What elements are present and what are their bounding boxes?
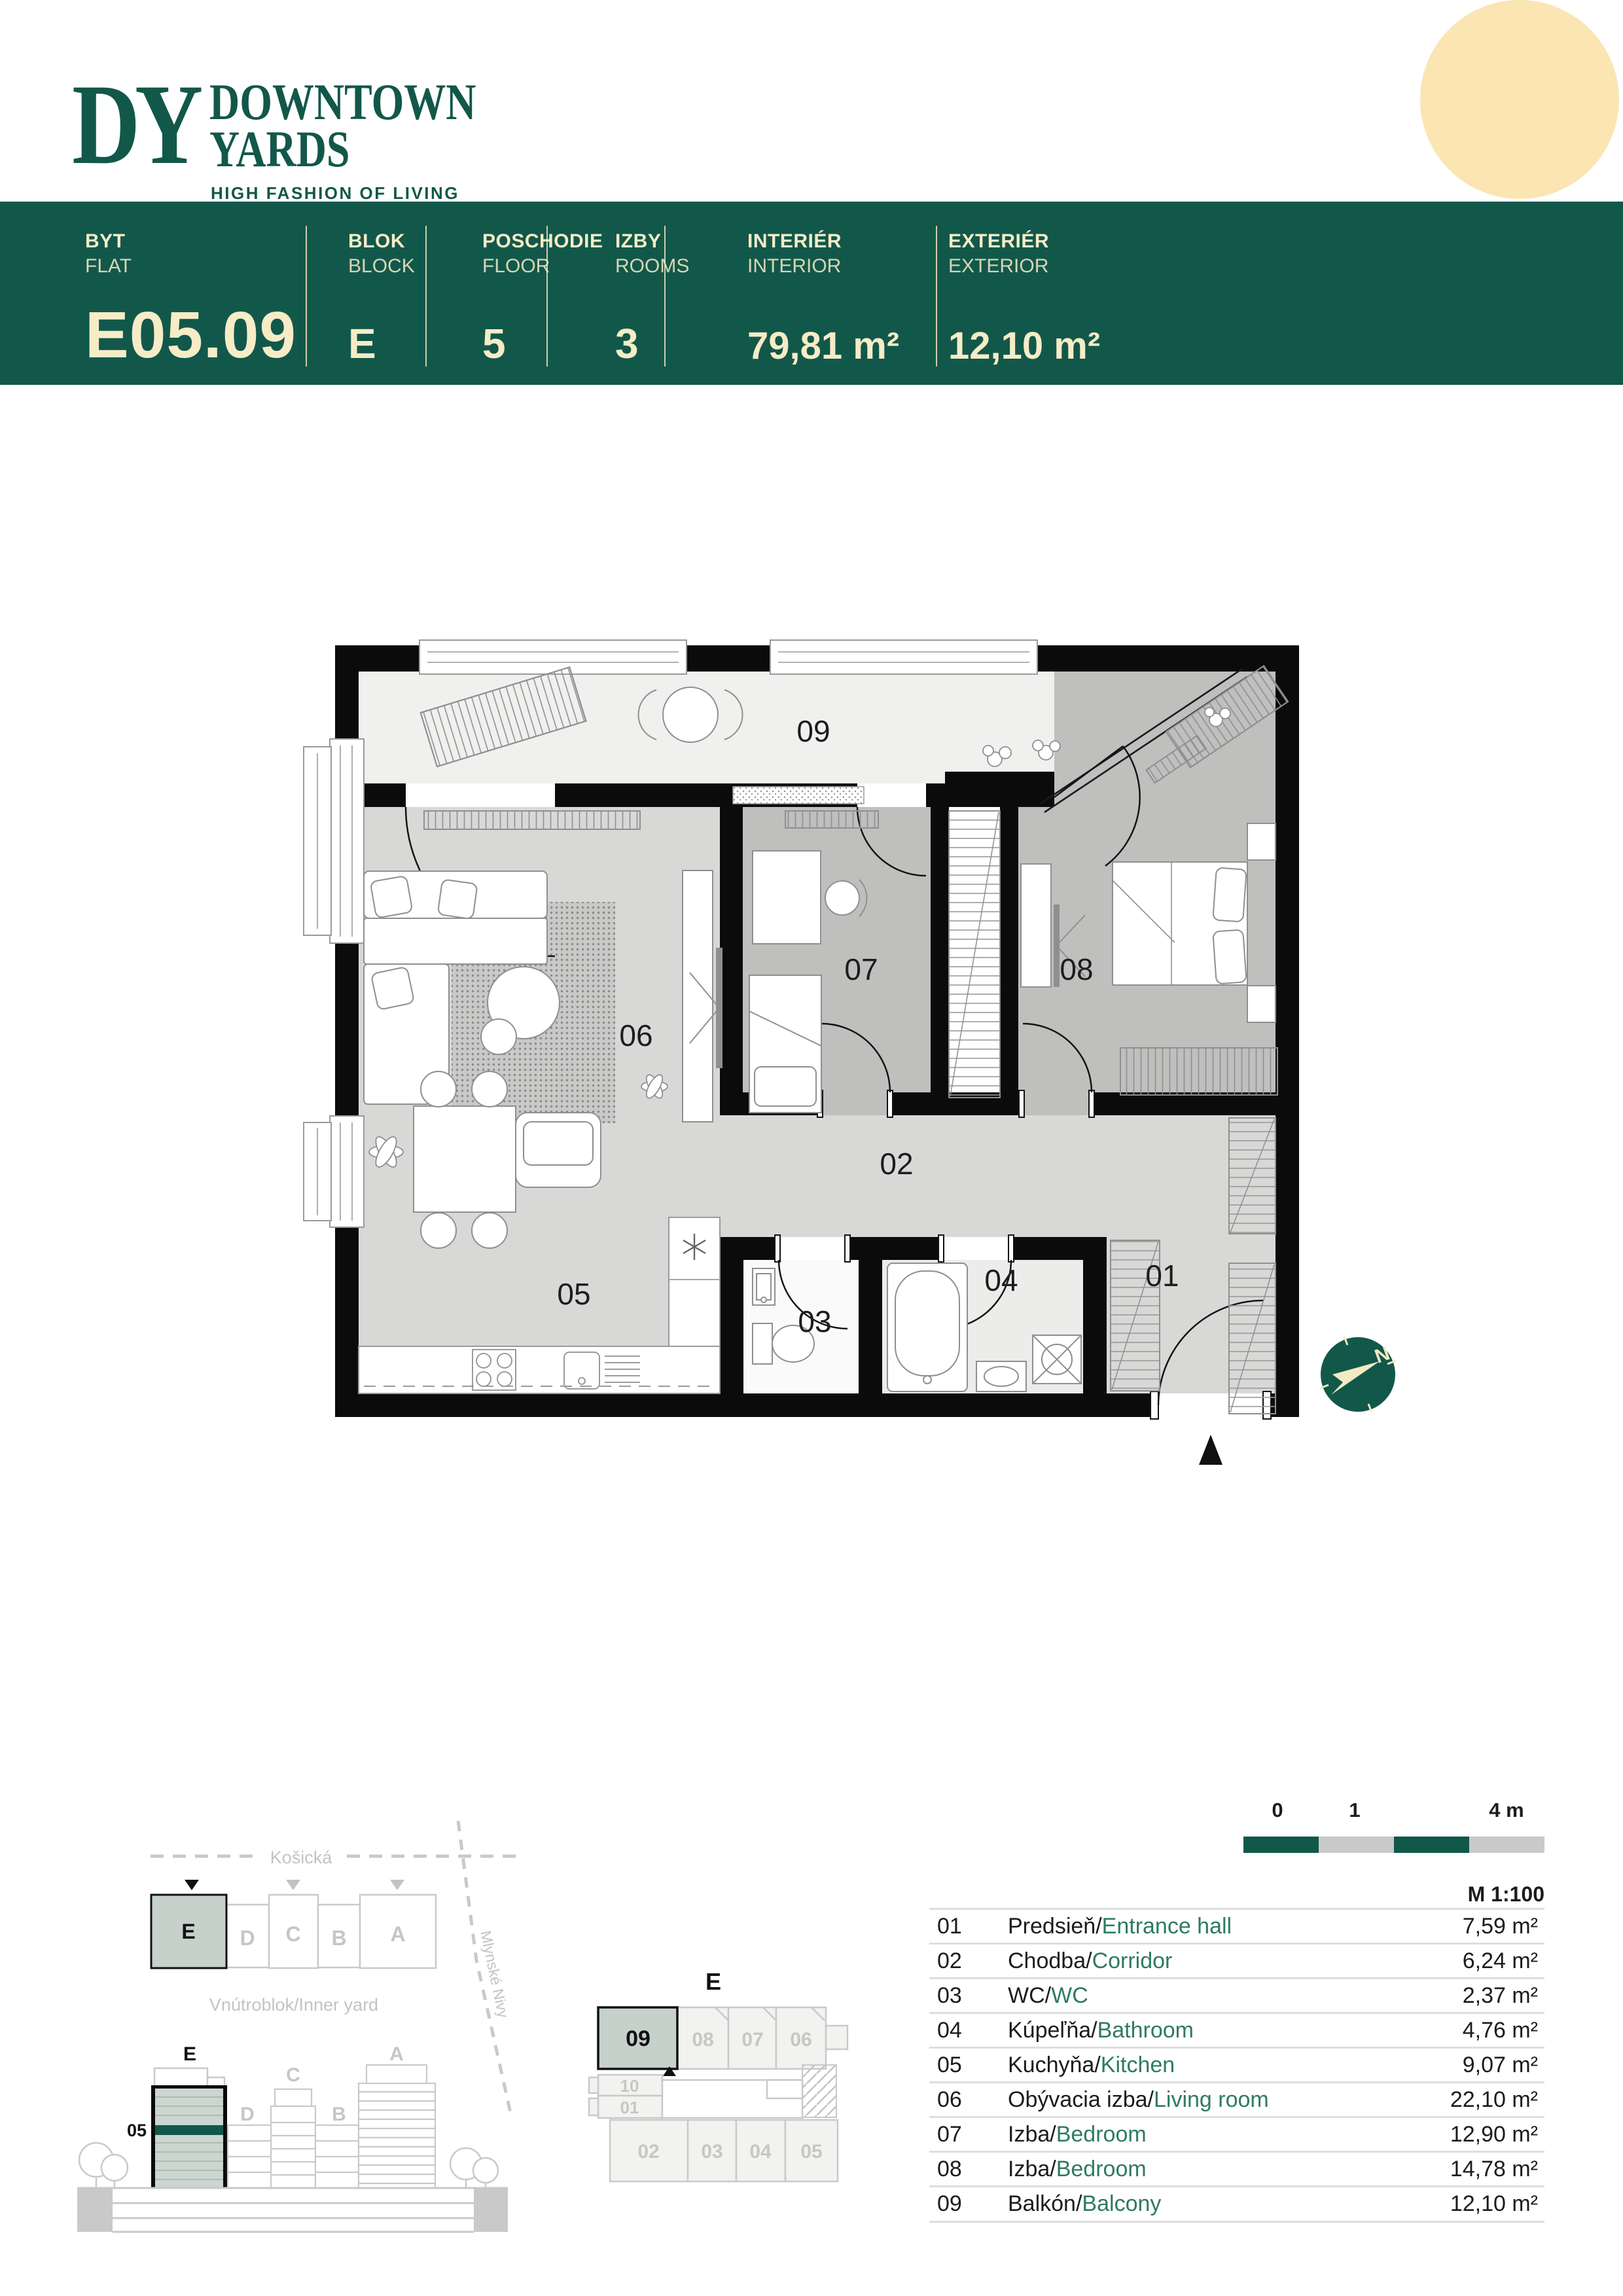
legend-name: Balkón/Balcony: [1008, 2191, 1450, 2217]
label-sk: INTERIÉR: [747, 230, 842, 253]
legend-num: 09: [929, 2191, 1008, 2217]
legend-row-08: 08 Izba/Bedroom 14,78 m²: [929, 2151, 1544, 2185]
legend-row-05: 05 Kuchyňa/Kitchen 9,07 m²: [929, 2047, 1544, 2081]
room-label-04: 04: [984, 1263, 1018, 1297]
elevation-floor-05-band: [155, 2125, 223, 2135]
site-plan-elevation: Košická Mlynské Nivy E D C B A Vnútroblo…: [52, 1780, 550, 2265]
room-label-06: 06: [619, 1018, 652, 1052]
scalebar-1: 1: [1329, 1799, 1381, 1822]
brand-name: DOWNTOWN YARDS: [209, 79, 476, 173]
room-label-08: 08: [1060, 952, 1093, 986]
legend-sep: /: [1091, 2018, 1097, 2043]
legend-area: 9,07 m²: [1463, 2053, 1544, 2078]
keyplan-label-01: 01: [620, 2098, 639, 2117]
legend-name-sk: Izba: [1008, 2157, 1050, 2181]
legend-name-en: Entrance hall: [1102, 1914, 1232, 1939]
label-sk: BLOK: [348, 230, 405, 253]
legend-row-02: 02 Chodba/Corridor 6,24 m²: [929, 1943, 1544, 1977]
legend-name-sk: Chodba: [1008, 1948, 1086, 1973]
floor-plan: 09 06 07 08 02 05 03 04 01 N: [288, 615, 1414, 1479]
legend-sep: /: [1094, 2053, 1100, 2077]
room-legend-table: 01 Predsieň/Entrance hall 7,59 m² 02 Cho…: [929, 1908, 1544, 2223]
room-label-02: 02: [880, 1147, 913, 1181]
scale-bar-segment: [1319, 1837, 1394, 1853]
elevation-b-label: B: [332, 2104, 346, 2125]
site-block-d-label: D: [240, 1926, 255, 1950]
legend-name-en: Bathroom: [1097, 2018, 1194, 2043]
legend-area: 12,90 m²: [1450, 2122, 1544, 2147]
legend-name-sk: Predsieň: [1008, 1914, 1096, 1939]
elevation-low-buildings: [228, 2065, 435, 2188]
decorative-circle: [1420, 0, 1619, 199]
legend-area: 12,10 m²: [1450, 2191, 1544, 2217]
scale-bar-segment: [1394, 1837, 1469, 1853]
site-block-a-label: A: [390, 1922, 405, 1946]
band-separator: [664, 226, 666, 367]
floor-value: 5: [482, 319, 506, 368]
legend-row-01: 01 Predsieň/Entrance hall 7,59 m²: [929, 1908, 1544, 1943]
ground-left: [77, 2188, 113, 2232]
brand-monogram: DY: [72, 76, 198, 174]
legend-sep: /: [1076, 2191, 1082, 2216]
legend-name: Chodba/Corridor: [1008, 1948, 1463, 1974]
legend-area: 4,76 m²: [1463, 2018, 1544, 2043]
legend-name-en: Living room: [1154, 2087, 1269, 2112]
keyplan-label-05: 05: [800, 2141, 822, 2162]
legend-row-03: 03 WC/WC 2,37 m²: [929, 1977, 1544, 2012]
legend-name-sk: Kuchyňa: [1008, 2053, 1094, 2077]
keyplan-label-04: 04: [749, 2141, 772, 2162]
interior-area: 79,81 m²: [747, 324, 899, 368]
keyplan-label-07: 07: [741, 2029, 763, 2051]
label-en: ROOMS: [615, 255, 689, 278]
legend-name: Kúpeľňa/Bathroom: [1008, 2018, 1463, 2043]
legend-row-07: 07 Izba/Bedroom 12,90 m²: [929, 2116, 1544, 2151]
room-label-03: 03: [798, 1304, 831, 1338]
band-separator: [306, 226, 307, 367]
label-en: INTERIOR: [747, 255, 841, 278]
elevation-e-cap-step: [207, 2077, 224, 2087]
legend-area: 2,37 m²: [1463, 1983, 1544, 2009]
elevation-e-cap: [154, 2068, 207, 2087]
compass: N: [1320, 1336, 1396, 1412]
elevation-e-label: E: [183, 2043, 196, 2065]
scale-bar-segment: [1243, 1837, 1319, 1853]
label-en: FLOOR: [482, 255, 550, 278]
legend-name-en: WC: [1051, 1983, 1088, 2008]
legend-sep: /: [1148, 2087, 1154, 2112]
keyplan-label-10: 10: [620, 2076, 639, 2096]
keyplan-core: [802, 2065, 836, 2117]
legend-name-sk: WC: [1008, 1983, 1045, 2008]
key-plan: E 09 08 07 06 10 01 02 03 04 05: [563, 1937, 929, 2199]
legend-name: Izba/Bedroom: [1008, 2157, 1450, 2182]
elevation-a-label: A: [389, 2043, 404, 2065]
legend-num: 03: [929, 1983, 1008, 2009]
rooms-value: 3: [615, 319, 639, 368]
label-sk: BYT: [85, 230, 126, 253]
flat-header-band: BYT FLAT E05.09 BLOK BLOCK E POSCHODIE F…: [0, 202, 1623, 385]
keyplan-label-08: 08: [692, 2029, 713, 2051]
marker-block-c: [286, 1880, 300, 1890]
street-mlynske-label: Mlynské Nivy: [477, 1929, 512, 2019]
legend-sep: /: [1086, 1948, 1092, 1973]
scale-ratio: M 1:100: [1348, 1882, 1544, 1907]
ground-lines: [77, 2188, 508, 2232]
brand-tagline: HIGH FASHION OF LIVING: [211, 183, 459, 204]
site-block-c-label: C: [285, 1922, 300, 1946]
block-value: E: [348, 319, 376, 368]
legend-area: 6,24 m²: [1463, 1948, 1544, 1974]
legend-name: Obývacia izba/Living room: [1008, 2087, 1450, 2113]
legend-row-09: 09 Balkón/Balcony 12,10 m²: [929, 2185, 1544, 2223]
band-separator: [936, 226, 937, 367]
legend-sep: /: [1050, 2122, 1056, 2147]
keyplan-block-label: E: [705, 1968, 721, 1995]
keyplan-label-03: 03: [701, 2141, 722, 2162]
legend-sep: /: [1096, 1914, 1101, 1939]
inner-yard-label: Vnútroblok/Inner yard: [209, 1995, 378, 2015]
legend-num: 08: [929, 2157, 1008, 2182]
legend-num: 04: [929, 2018, 1008, 2043]
legend-area: 7,59 m²: [1463, 1914, 1544, 1939]
street-mlynske-line: [458, 1821, 510, 2113]
room-label-05: 05: [557, 1277, 590, 1311]
label-sk: IZBY: [615, 230, 661, 253]
label-sk: POSCHODIE: [482, 230, 603, 253]
brand-name-line1: DOWNTOWN: [209, 79, 476, 126]
flat-number: E05.09: [85, 298, 296, 373]
legend-name-sk: Kúpeľňa: [1008, 2018, 1091, 2043]
elevation-e-body: [152, 2087, 226, 2188]
legend-name: Predsieň/Entrance hall: [1008, 1914, 1463, 1939]
label-sk: EXTERIÉR: [948, 230, 1049, 253]
scalebar-4m: 4 m: [1480, 1799, 1533, 1822]
legend-name: Izba/Bedroom: [1008, 2122, 1450, 2147]
scale-bar: [1243, 1837, 1544, 1853]
legend-name: Kuchyňa/Kitchen: [1008, 2053, 1463, 2078]
marker-block-a: [390, 1880, 404, 1890]
street-kosicka-label: Košická: [270, 1848, 333, 1867]
elevation-floor-05-label: 05: [127, 2121, 147, 2140]
elevation-c-label: C: [286, 2064, 300, 2086]
label-en: BLOCK: [348, 255, 415, 278]
legend-num: 01: [929, 1914, 1008, 1939]
label-en: EXTERIOR: [948, 255, 1048, 278]
scalebar-0: 0: [1251, 1799, 1304, 1822]
legend-num: 05: [929, 2053, 1008, 2078]
keyplan-label-02: 02: [637, 2141, 659, 2162]
legend-name-en: Bedroom: [1056, 2157, 1147, 2181]
exterior-area: 12,10 m²: [948, 324, 1100, 368]
label-en: FLAT: [85, 255, 132, 278]
ground-right: [474, 2188, 508, 2232]
legend-num: 02: [929, 1948, 1008, 1974]
legend-sep: /: [1050, 2157, 1056, 2181]
legend-num: 07: [929, 2122, 1008, 2147]
keyplan-label-06: 06: [790, 2029, 811, 2051]
legend-row-04: 04 Kúpeľňa/Bathroom 4,76 m²: [929, 2012, 1544, 2047]
entrance-arrow: [1199, 1435, 1222, 1465]
legend-name: WC/WC: [1008, 1983, 1463, 2009]
brand-name-line2: YARDS: [209, 126, 476, 173]
page: DY DOWNTOWN YARDS HIGH FASHION OF LIVING…: [0, 0, 1623, 2296]
elevation-d-label: D: [240, 2104, 255, 2125]
legend-name-sk: Balkón: [1008, 2191, 1076, 2216]
planter-plants: [733, 787, 864, 804]
legend-name-en: Balcony: [1082, 2191, 1161, 2216]
legend-sep: /: [1045, 1983, 1051, 2008]
band-separator: [425, 226, 427, 367]
legend-name-en: Kitchen: [1101, 2053, 1175, 2077]
marker-block-e: [185, 1880, 199, 1890]
legend-row-06: 06 Obývacia izba/Living room 22,10 m²: [929, 2081, 1544, 2116]
legend-name-sk: Obývacia izba: [1008, 2087, 1148, 2112]
legend-area: 22,10 m²: [1450, 2087, 1544, 2113]
site-block-e-label: E: [181, 1920, 195, 1943]
room-label-07: 07: [844, 952, 878, 986]
room-label-09: 09: [796, 714, 830, 748]
legend-name-en: Corridor: [1092, 1948, 1173, 1973]
keyplan-label-09: 09: [626, 2026, 651, 2051]
legend-num: 06: [929, 2087, 1008, 2113]
legend-name-en: Bedroom: [1056, 2122, 1147, 2147]
site-block-b-label: B: [331, 1926, 346, 1950]
scale-bar-segment: [1469, 1837, 1544, 1853]
room-label-01: 01: [1145, 1259, 1179, 1293]
legend-name-sk: Izba: [1008, 2122, 1050, 2147]
legend-area: 14,78 m²: [1450, 2157, 1544, 2182]
